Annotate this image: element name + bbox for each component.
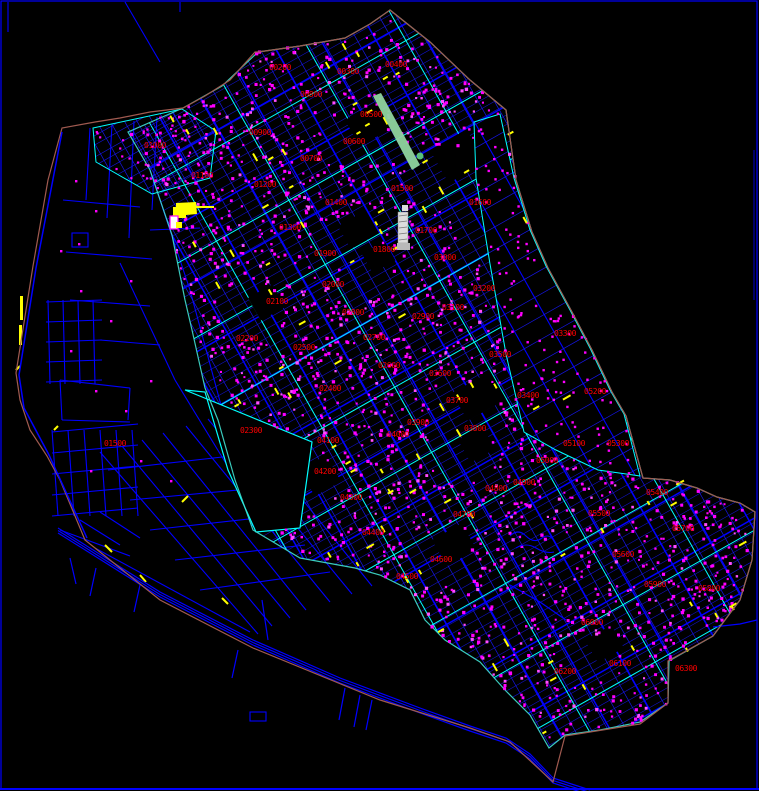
sector-label-01100: 01100 <box>191 171 214 180</box>
sector-label-03900: 03900 <box>407 418 430 427</box>
sector-label-03600: 03600 <box>429 369 452 378</box>
sector-label-00700: 00700 <box>300 154 323 163</box>
sector-label-05700: 05700 <box>672 524 695 533</box>
sector-label-05200: 05200 <box>584 387 607 396</box>
sector-label-02500: 02500 <box>293 343 316 352</box>
sector-label-05300: 05300 <box>607 439 630 448</box>
sector-label-02000: 02000 <box>322 280 345 289</box>
city-cadastral-map: 0020000300004000050000600007000080000900… <box>0 0 759 791</box>
sector-label-04200: 04200 <box>314 467 337 476</box>
sector-label-05100: 05100 <box>563 439 586 448</box>
sector-label-06200: 06200 <box>554 667 577 676</box>
sector-label-03800: 03800 <box>464 424 487 433</box>
sector-label-00800: 00800 <box>300 90 323 99</box>
sector-label-06000: 06000 <box>581 618 604 627</box>
sector-label-04600: 04600 <box>430 555 453 564</box>
sector-label-01600: 01600 <box>469 198 492 207</box>
sector-label-04400: 04400 <box>362 528 385 537</box>
sector-label-02800: 02800 <box>342 308 365 317</box>
sector-label-02600: 02600 <box>378 361 401 370</box>
sector-label-01300: 01300 <box>279 223 302 232</box>
sector-label-05400: 05400 <box>646 488 669 497</box>
sector-label-00900: 00900 <box>249 128 272 137</box>
sector-label-04300: 04300 <box>340 493 363 502</box>
sector-label-05800: 05800 <box>698 584 721 593</box>
sector-label-03000: 03000 <box>434 253 457 262</box>
sector-label-04500: 04500 <box>396 572 419 581</box>
sector-label-03500: 03500 <box>489 350 512 359</box>
sector-label-02200: 02200 <box>236 334 259 343</box>
sector-label-04100: 04100 <box>317 436 340 445</box>
gray-annotation <box>397 205 410 250</box>
sector-label-01500: 01500 <box>391 184 414 193</box>
sector-label-03400: 03400 <box>517 391 540 400</box>
sector-label-02700: 02700 <box>363 333 386 342</box>
sector-label-05000: 05000 <box>536 456 559 465</box>
sector-label-01700: 01700 <box>415 226 438 235</box>
sector-label-01800: 01800 <box>373 245 396 254</box>
sector-label-00300: 00300 <box>337 67 360 76</box>
sector-label-00200: 00200 <box>269 63 292 72</box>
sector-label-04700: 04700 <box>453 510 476 519</box>
sector-label-03100: 03100 <box>442 303 465 312</box>
sector-label-01200: 01200 <box>254 180 277 189</box>
sector-label-02100: 02100 <box>266 297 289 306</box>
sector-label-03300: 03300 <box>554 329 577 338</box>
sector-label-03700: 03700 <box>446 396 469 405</box>
sector-label-00600: 00600 <box>343 137 366 146</box>
sector-label-05900: 05900 <box>644 580 667 589</box>
sector-label-04000: 04000 <box>387 430 410 439</box>
sector-label-04900: 04900 <box>513 478 536 487</box>
sector-label-01400: 01400 <box>325 198 348 207</box>
sector-label-00500: 00500 <box>360 110 383 119</box>
sector-label-02300: 02300 <box>240 426 263 435</box>
sector-label-05500: 05500 <box>588 509 611 518</box>
sector-label-06100: 06100 <box>609 659 632 668</box>
sector-label-03200: 03200 <box>473 284 496 293</box>
sector-label-01900: 01900 <box>314 249 337 258</box>
cad-drawing-viewport[interactable]: 0020000300004000050000600007000080000900… <box>0 0 759 791</box>
sector-label-06300: 06300 <box>675 664 698 673</box>
sector-label-02900: 02900 <box>412 312 435 321</box>
sector-label-01500: 01500 <box>104 439 127 448</box>
sector-label-01000: 01000 <box>144 141 167 150</box>
sector-label-00400: 00400 <box>385 60 408 69</box>
sector-label-05600: 05600 <box>612 550 635 559</box>
sector-label-04800: 04800 <box>485 484 508 493</box>
sector-label-02400: 02400 <box>319 384 342 393</box>
